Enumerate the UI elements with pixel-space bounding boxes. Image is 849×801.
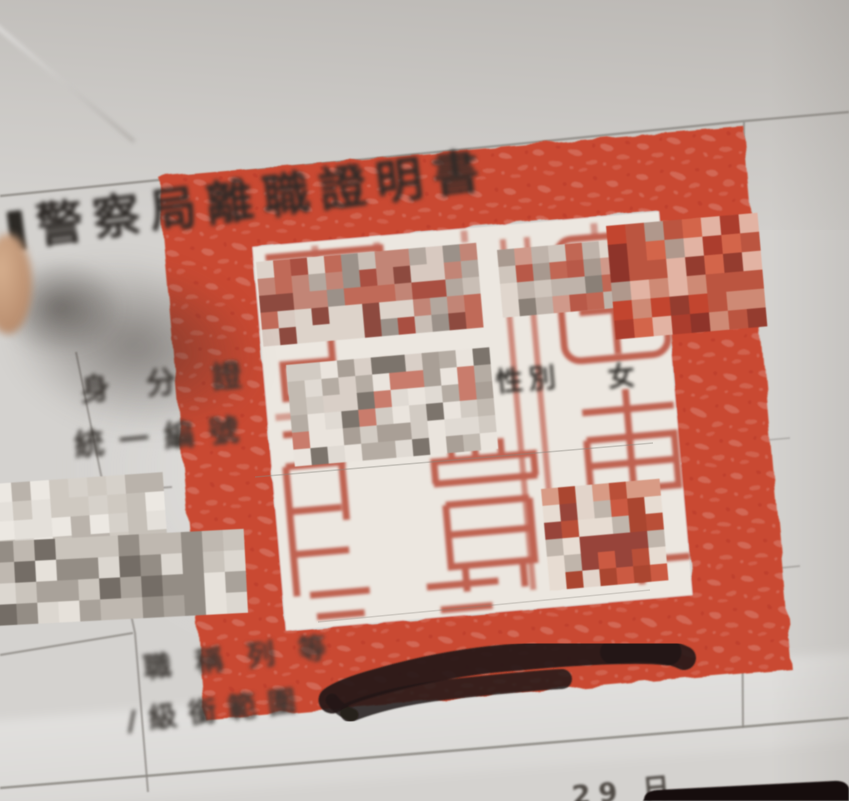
photographed-certificate: 29 日 [0,0,849,801]
rank-field-label-line2: /級銜範圍 [124,678,310,740]
rank-field-label-line1: 職稱列等 [141,623,352,686]
gender-field-label: 性別 [494,355,563,400]
gender-field-value: 女 [606,354,636,395]
